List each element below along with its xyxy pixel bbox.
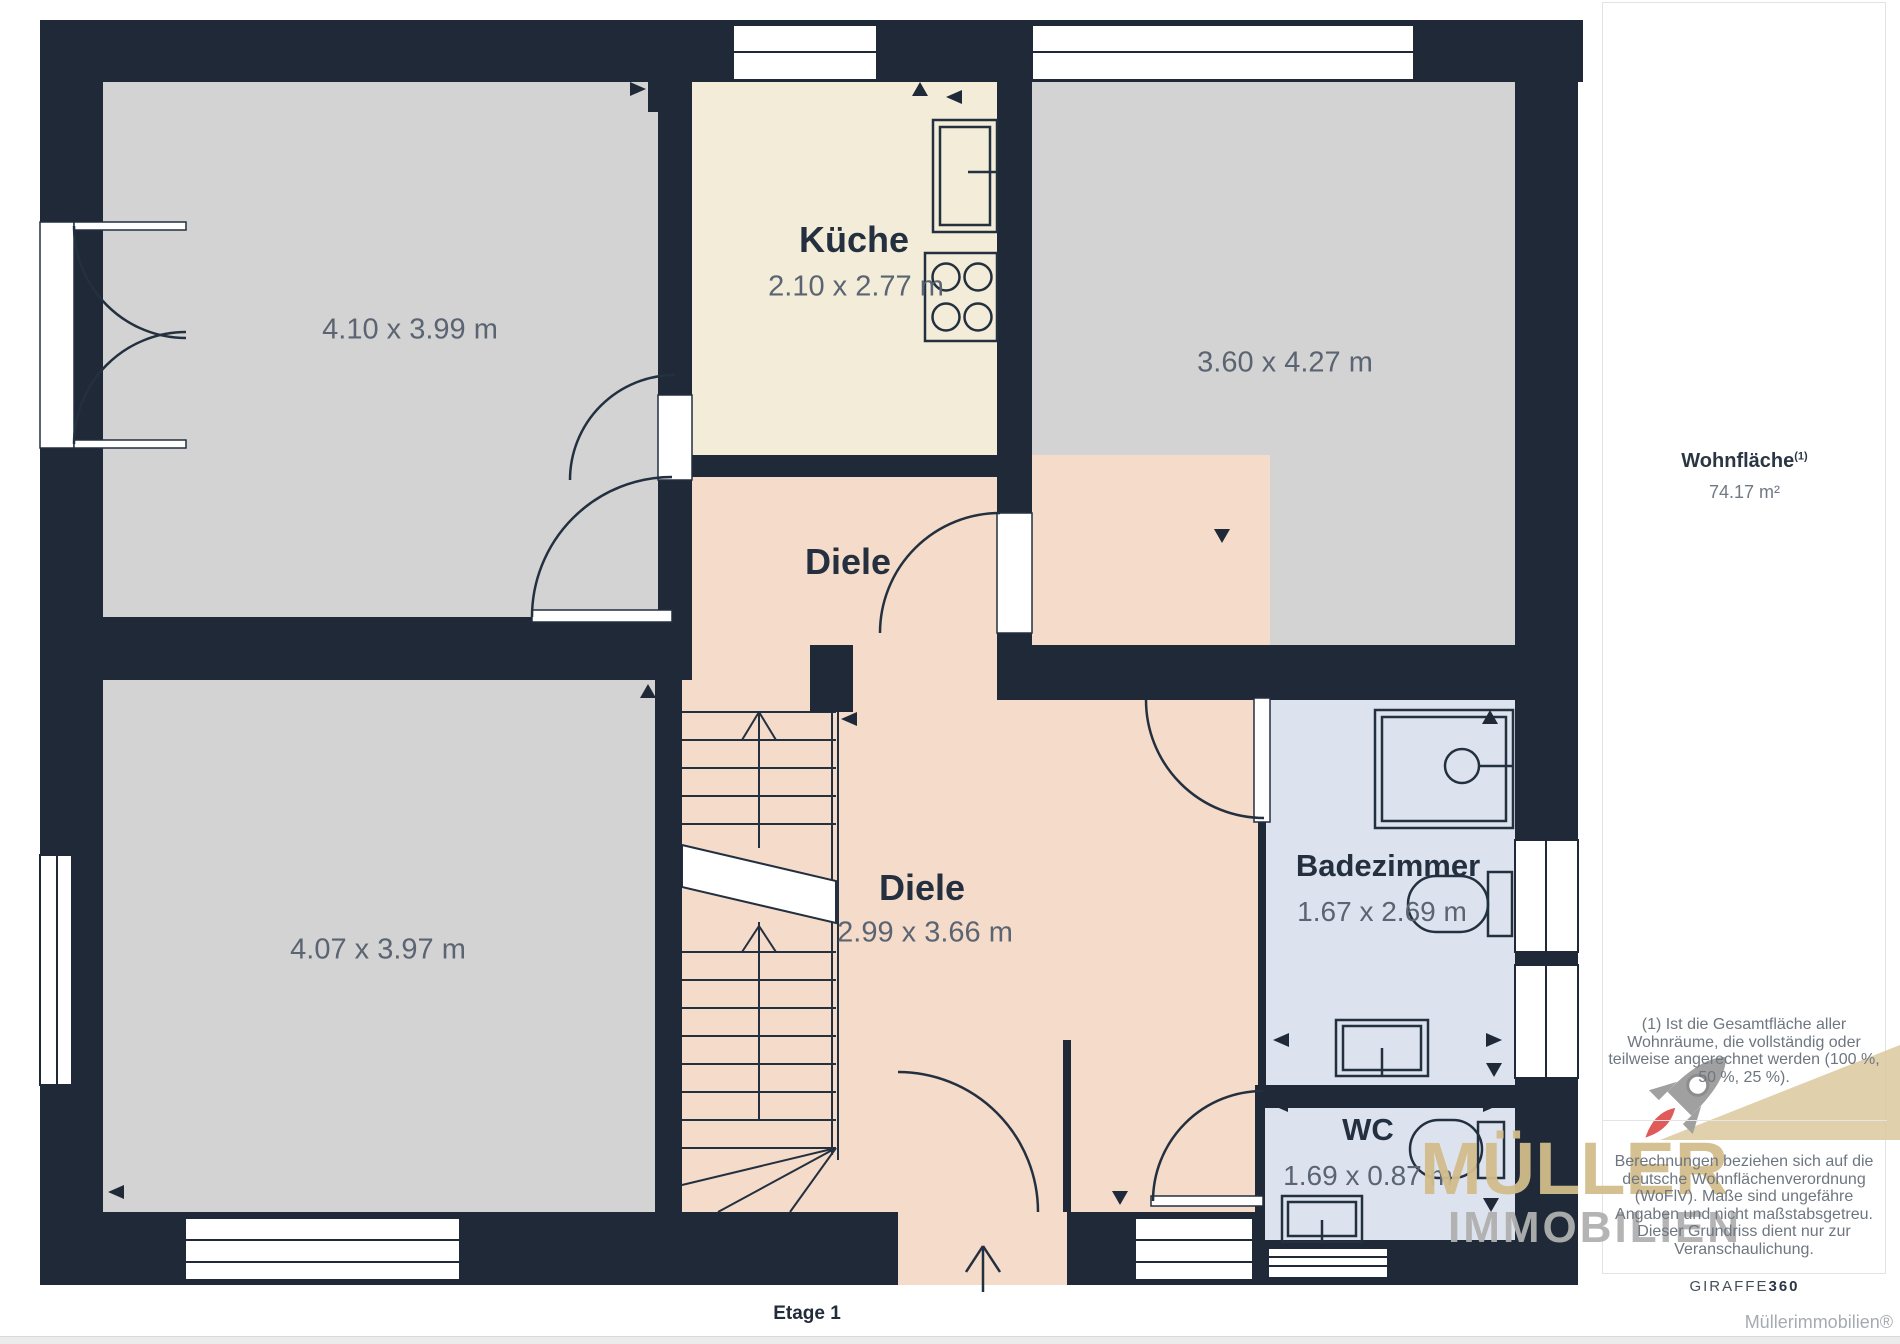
agency-credit: Müllerimmobilien® [1602, 1312, 1893, 1333]
room-label-diele-main: Diele [879, 867, 965, 909]
room-label-kueche: Küche [799, 219, 909, 261]
room-label-badezimmer: Badezimmer [1296, 848, 1480, 884]
living-area-value: 74.17 m² [1602, 482, 1887, 503]
room-label-diele-upper: Diele [805, 541, 891, 583]
room-label-wc: WC [1342, 1112, 1394, 1148]
bottom-strip [0, 1336, 1900, 1344]
room-label-top-right: 3.60 x 4.27 m [1197, 347, 1373, 380]
living-area-label: Wohnfläche(1) [1602, 450, 1887, 473]
floor-label: Etage 1 [737, 1303, 877, 1325]
room-dims-kueche: 2.10 x 2.77 m [768, 271, 944, 304]
floorplan-page: 4.10 x 3.99 m Küche 2.10 x 2.77 m 3.60 x… [0, 0, 1900, 1344]
giraffe360-brand: GIRAFFE360 [1602, 1278, 1887, 1295]
living-area-block: Wohnfläche(1) 74.17 m² [1602, 450, 1887, 503]
room-label-top-left: 4.10 x 3.99 m [322, 314, 498, 347]
sidebar-divider [1602, 1120, 1887, 1121]
room-dims-diele-main: 2.99 x 3.66 m [837, 917, 1013, 950]
footnote-disclaimer: Berechnungen beziehen sich auf die deuts… [1606, 1153, 1882, 1258]
footnote-ref: (1) [1794, 450, 1807, 462]
footnote-definition: (1) Ist die Gesamtfläche aller Wohnräume… [1606, 1016, 1882, 1086]
room-label-bottom-left: 4.07 x 3.97 m [290, 934, 466, 967]
room-dims-badezimmer: 1.67 x 2.69 m [1297, 896, 1467, 928]
